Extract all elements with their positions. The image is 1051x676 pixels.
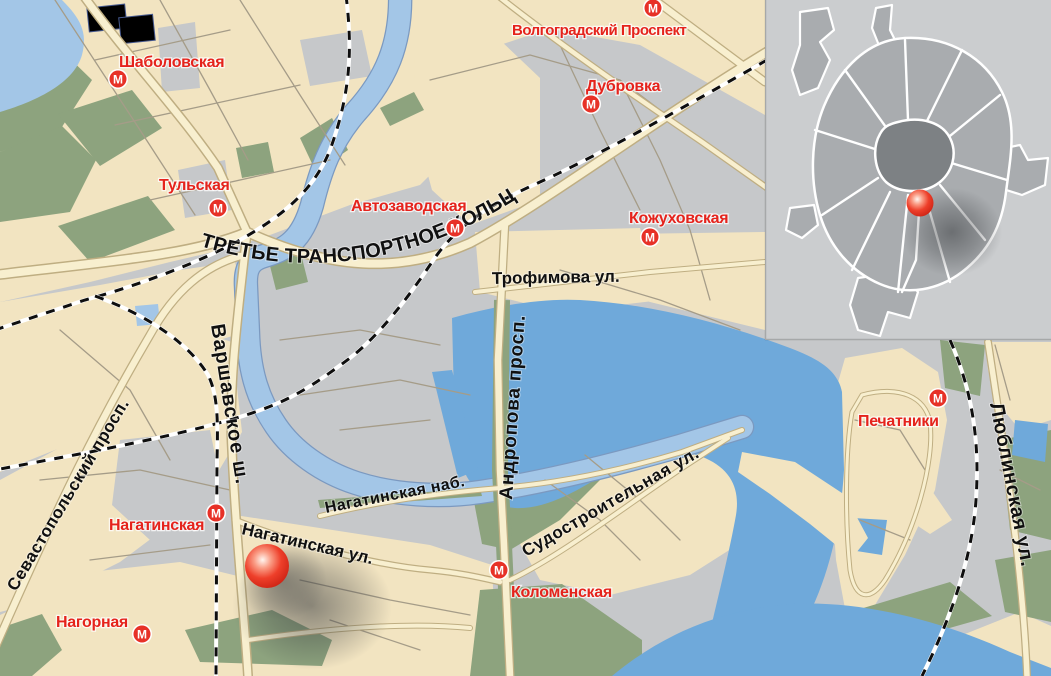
svg-text:М: М <box>494 564 504 578</box>
metro-icon[interactable]: М <box>132 624 152 644</box>
station-label: Нагатинская <box>109 517 204 534</box>
metro-icon[interactable]: М <box>489 560 509 580</box>
metro-icon[interactable]: М <box>640 227 660 247</box>
svg-text:М: М <box>450 222 460 236</box>
station-label: Дубровка <box>586 78 661 95</box>
station-label: Тульская <box>159 177 230 194</box>
svg-text:М: М <box>213 202 223 216</box>
metro-icon[interactable]: М <box>445 218 465 238</box>
location-marker[interactable] <box>245 544 289 588</box>
svg-text:М: М <box>586 98 596 112</box>
metro-icon[interactable]: М <box>208 198 228 218</box>
station-label: Печатники <box>858 413 939 430</box>
metro-icon[interactable]: М <box>206 503 226 523</box>
metro-icon[interactable]: М <box>928 388 948 408</box>
svg-text:М: М <box>137 628 147 642</box>
svg-text:М: М <box>211 507 221 521</box>
station-label: Нагорная <box>56 614 128 631</box>
map-screenshot: ТРЕТЬЕ ТРАНСПОРТНОЕ КОЛЬЦО Трофимова ул.… <box>0 0 1051 676</box>
station-label: Волгоградский Проспект <box>512 22 687 39</box>
svg-text:М: М <box>933 392 943 406</box>
metro-icon[interactable]: М <box>581 94 601 114</box>
street-label-trofimova: Трофимова ул. <box>492 267 620 288</box>
station-label: Коломенская <box>511 584 612 601</box>
metro-icon[interactable]: М <box>108 69 128 89</box>
svg-text:М: М <box>113 73 123 87</box>
station-label: Автозаводская <box>351 198 466 215</box>
map-canvas[interactable]: ТРЕТЬЕ ТРАНСПОРТНОЕ КОЛЬЦО Трофимова ул.… <box>0 0 1051 676</box>
svg-text:М: М <box>645 231 655 245</box>
inset-city-center <box>875 120 953 191</box>
station-label: Шаболовская <box>119 54 224 71</box>
station-label: Кожуховская <box>629 210 728 227</box>
inset-location-marker[interactable] <box>907 190 934 217</box>
inset-minimap[interactable] <box>765 0 1051 340</box>
svg-text:М: М <box>648 2 658 16</box>
